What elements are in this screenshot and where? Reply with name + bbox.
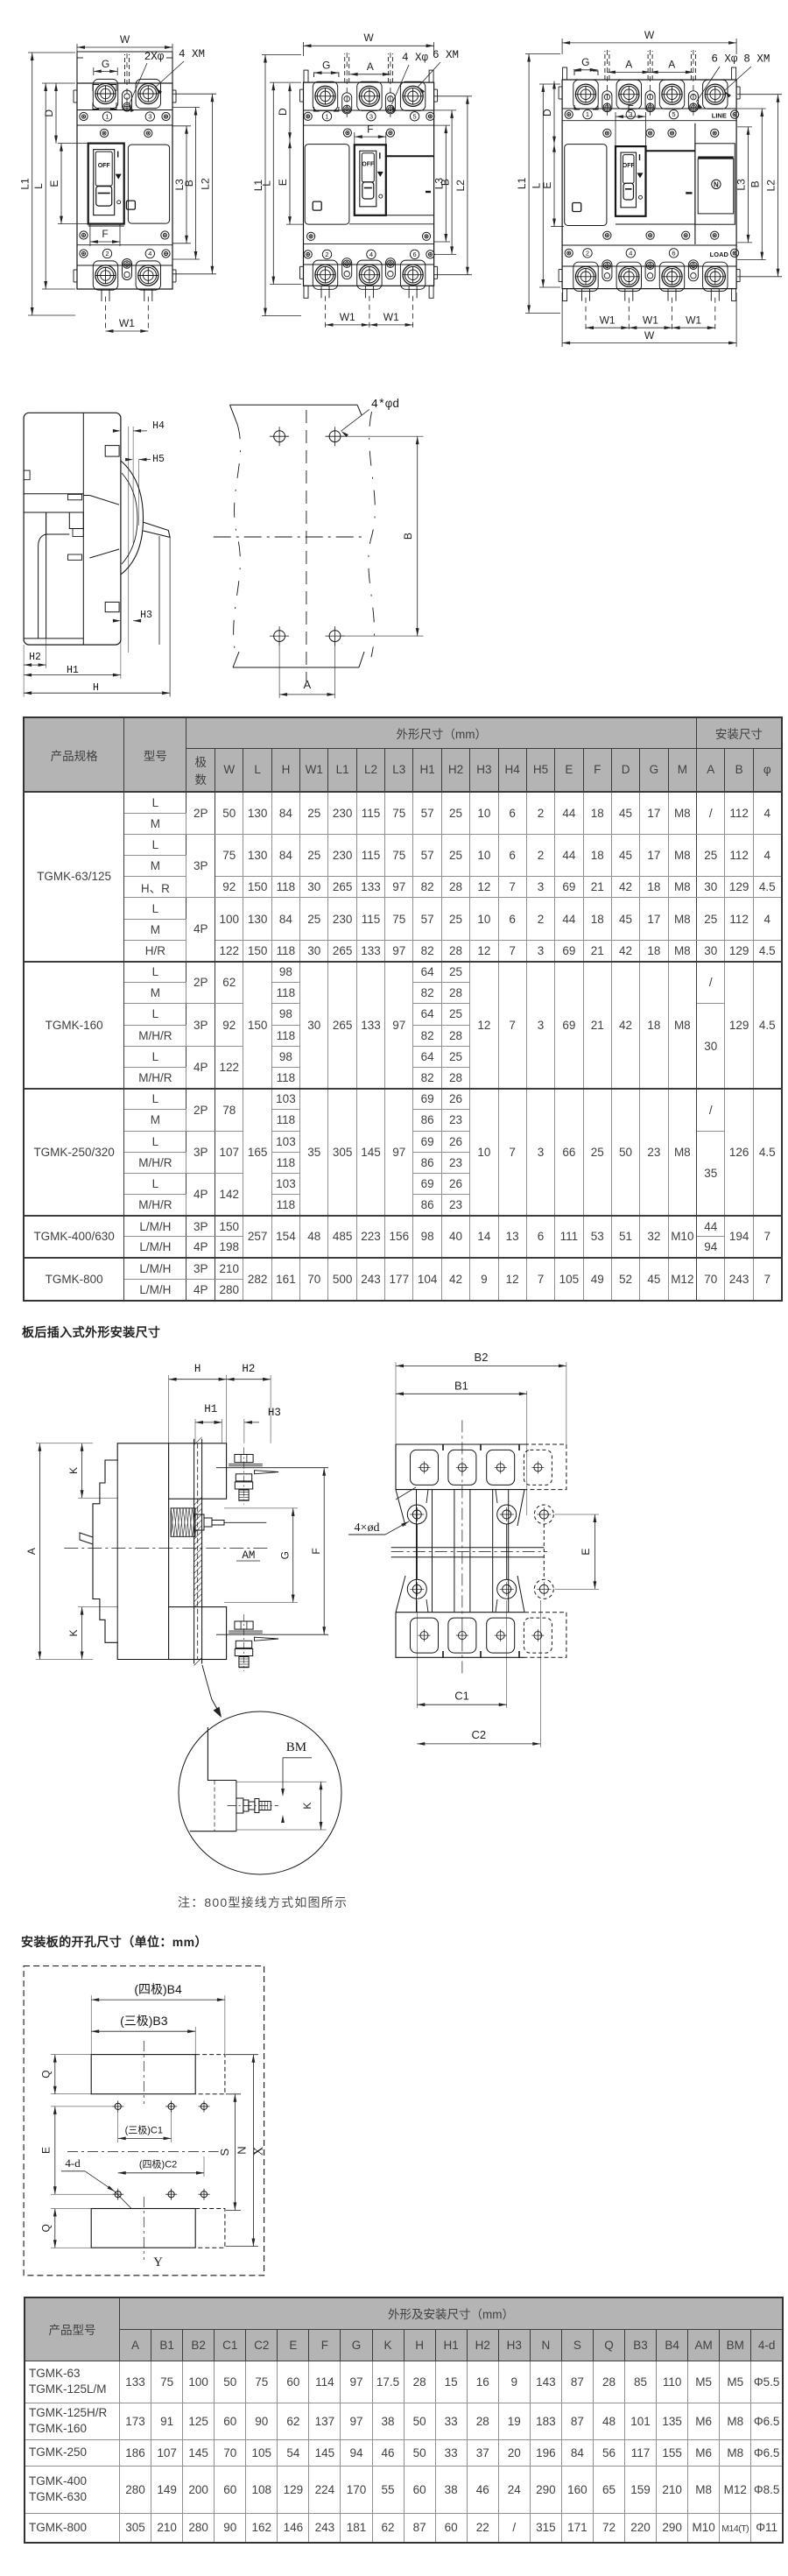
svg-text:E: E <box>580 1549 592 1556</box>
svg-text:6 Xφ: 6 Xφ <box>711 53 738 66</box>
svg-text:LOAD: LOAD <box>710 251 729 258</box>
svg-text:E: E <box>40 2147 53 2154</box>
svg-text:D: D <box>541 109 553 116</box>
svg-text:W: W <box>644 29 655 41</box>
svg-text:8 XM: 8 XM <box>743 53 770 66</box>
svg-text:S: S <box>218 2148 231 2156</box>
svg-text:L2: L2 <box>200 178 212 190</box>
svg-text:H4: H4 <box>152 420 165 432</box>
svg-text:D: D <box>43 109 55 117</box>
svg-text:W1: W1 <box>383 311 399 323</box>
svg-text:A: A <box>625 59 632 71</box>
svg-text:6: 6 <box>672 250 675 258</box>
svg-text:4*φd: 4*φd <box>371 399 399 412</box>
svg-text:W1: W1 <box>600 314 616 327</box>
svg-text:E: E <box>277 179 289 186</box>
svg-text:Q: Q <box>40 2070 53 2078</box>
svg-text:(三极)C1: (三极)C1 <box>125 2123 163 2135</box>
svg-text:F: F <box>310 1548 322 1554</box>
svg-text:1: 1 <box>325 112 328 120</box>
svg-text:F: F <box>628 103 634 116</box>
svg-text:D: D <box>277 108 289 116</box>
svg-text:K: K <box>67 1629 80 1636</box>
svg-text:6 XM: 6 XM <box>433 49 459 61</box>
svg-text:3: 3 <box>148 113 151 121</box>
svg-text:LINE: LINE <box>712 112 727 120</box>
svg-text:OFF: OFF <box>362 161 375 167</box>
svg-text:E: E <box>48 180 60 187</box>
svg-text:K: K <box>67 1467 80 1474</box>
svg-text:4 Xφ: 4 Xφ <box>402 52 429 64</box>
svg-text:2: 2 <box>325 251 328 258</box>
svg-text:H1: H1 <box>67 665 79 676</box>
svg-text:H: H <box>93 682 99 694</box>
svg-text:4-d: 4-d <box>65 2156 81 2170</box>
svg-text:B: B <box>183 180 195 187</box>
svg-text:F: F <box>367 124 373 136</box>
svg-text:H3: H3 <box>140 610 152 621</box>
svg-text:H2: H2 <box>242 1363 255 1375</box>
svg-text:K: K <box>301 1803 313 1810</box>
svg-text:2: 2 <box>105 250 109 258</box>
svg-text:C2: C2 <box>471 1728 486 1741</box>
svg-text:4 XM: 4 XM <box>179 48 205 60</box>
svg-text:B: B <box>402 533 414 540</box>
svg-text:Q: Q <box>40 2224 53 2232</box>
svg-text:L2: L2 <box>454 180 467 192</box>
svg-text:B1: B1 <box>454 1380 468 1393</box>
svg-text:A: A <box>668 59 675 71</box>
svg-text:4: 4 <box>369 251 373 258</box>
svg-text:F: F <box>102 228 108 240</box>
svg-text:5: 5 <box>413 112 417 120</box>
svg-text:G: G <box>279 1551 292 1559</box>
svg-text:G: G <box>581 56 589 68</box>
svg-text:3: 3 <box>369 112 373 120</box>
svg-text:L2: L2 <box>765 180 777 192</box>
svg-text:4: 4 <box>629 250 632 258</box>
svg-text:B2: B2 <box>475 1351 489 1364</box>
svg-text:2Xφ: 2Xφ <box>144 51 165 63</box>
svg-text:1: 1 <box>105 113 109 121</box>
svg-text:B: B <box>440 179 452 186</box>
svg-text:X: X <box>252 2146 266 2156</box>
svg-text:H3: H3 <box>268 1407 281 1419</box>
svg-text:5: 5 <box>672 110 675 118</box>
svg-text:(四极)B4: (四极)B4 <box>134 1982 182 1996</box>
svg-text:W1: W1 <box>686 314 701 327</box>
svg-text:4×ød: 4×ød <box>355 1521 380 1535</box>
svg-text:E: E <box>541 182 553 189</box>
svg-text:L: L <box>32 183 45 189</box>
svg-text:A: A <box>303 678 311 691</box>
svg-text:2: 2 <box>586 250 589 258</box>
svg-text:OFF: OFF <box>623 163 636 169</box>
svg-text:W: W <box>363 32 374 44</box>
svg-text:(三极)B3: (三极)B3 <box>120 2014 168 2028</box>
svg-text:Y: Y <box>153 2255 163 2269</box>
svg-text:H1: H1 <box>204 1403 217 1415</box>
svg-text:W: W <box>644 329 655 342</box>
svg-text:H5: H5 <box>152 454 165 465</box>
svg-text:BM: BM <box>286 1740 306 1754</box>
svg-text:A: A <box>25 1548 38 1555</box>
svg-text:C1: C1 <box>454 1690 469 1703</box>
svg-text:G: G <box>102 58 109 70</box>
svg-text:W1: W1 <box>340 311 355 323</box>
svg-text:OFF: OFF <box>98 163 111 169</box>
svg-text:B: B <box>749 180 762 187</box>
svg-text:L1: L1 <box>19 178 32 190</box>
svg-text:W1: W1 <box>119 317 135 329</box>
svg-text:W: W <box>120 33 130 46</box>
svg-text:H2: H2 <box>29 652 41 663</box>
svg-text:L1: L1 <box>516 177 528 189</box>
svg-text:(四极)C2: (四极)C2 <box>139 2158 177 2170</box>
svg-text:4: 4 <box>148 250 151 258</box>
svg-text:L: L <box>260 180 272 187</box>
svg-text:A: A <box>367 60 374 73</box>
svg-text:N: N <box>714 181 719 189</box>
svg-text:W1: W1 <box>643 314 658 327</box>
svg-text:1: 1 <box>586 110 589 118</box>
svg-text:N: N <box>236 2146 249 2154</box>
svg-text:L3: L3 <box>735 179 748 191</box>
svg-text:AM: AM <box>242 1549 255 1562</box>
svg-text:G: G <box>322 60 330 72</box>
svg-text:6: 6 <box>413 251 417 258</box>
svg-text:H: H <box>194 1363 201 1375</box>
